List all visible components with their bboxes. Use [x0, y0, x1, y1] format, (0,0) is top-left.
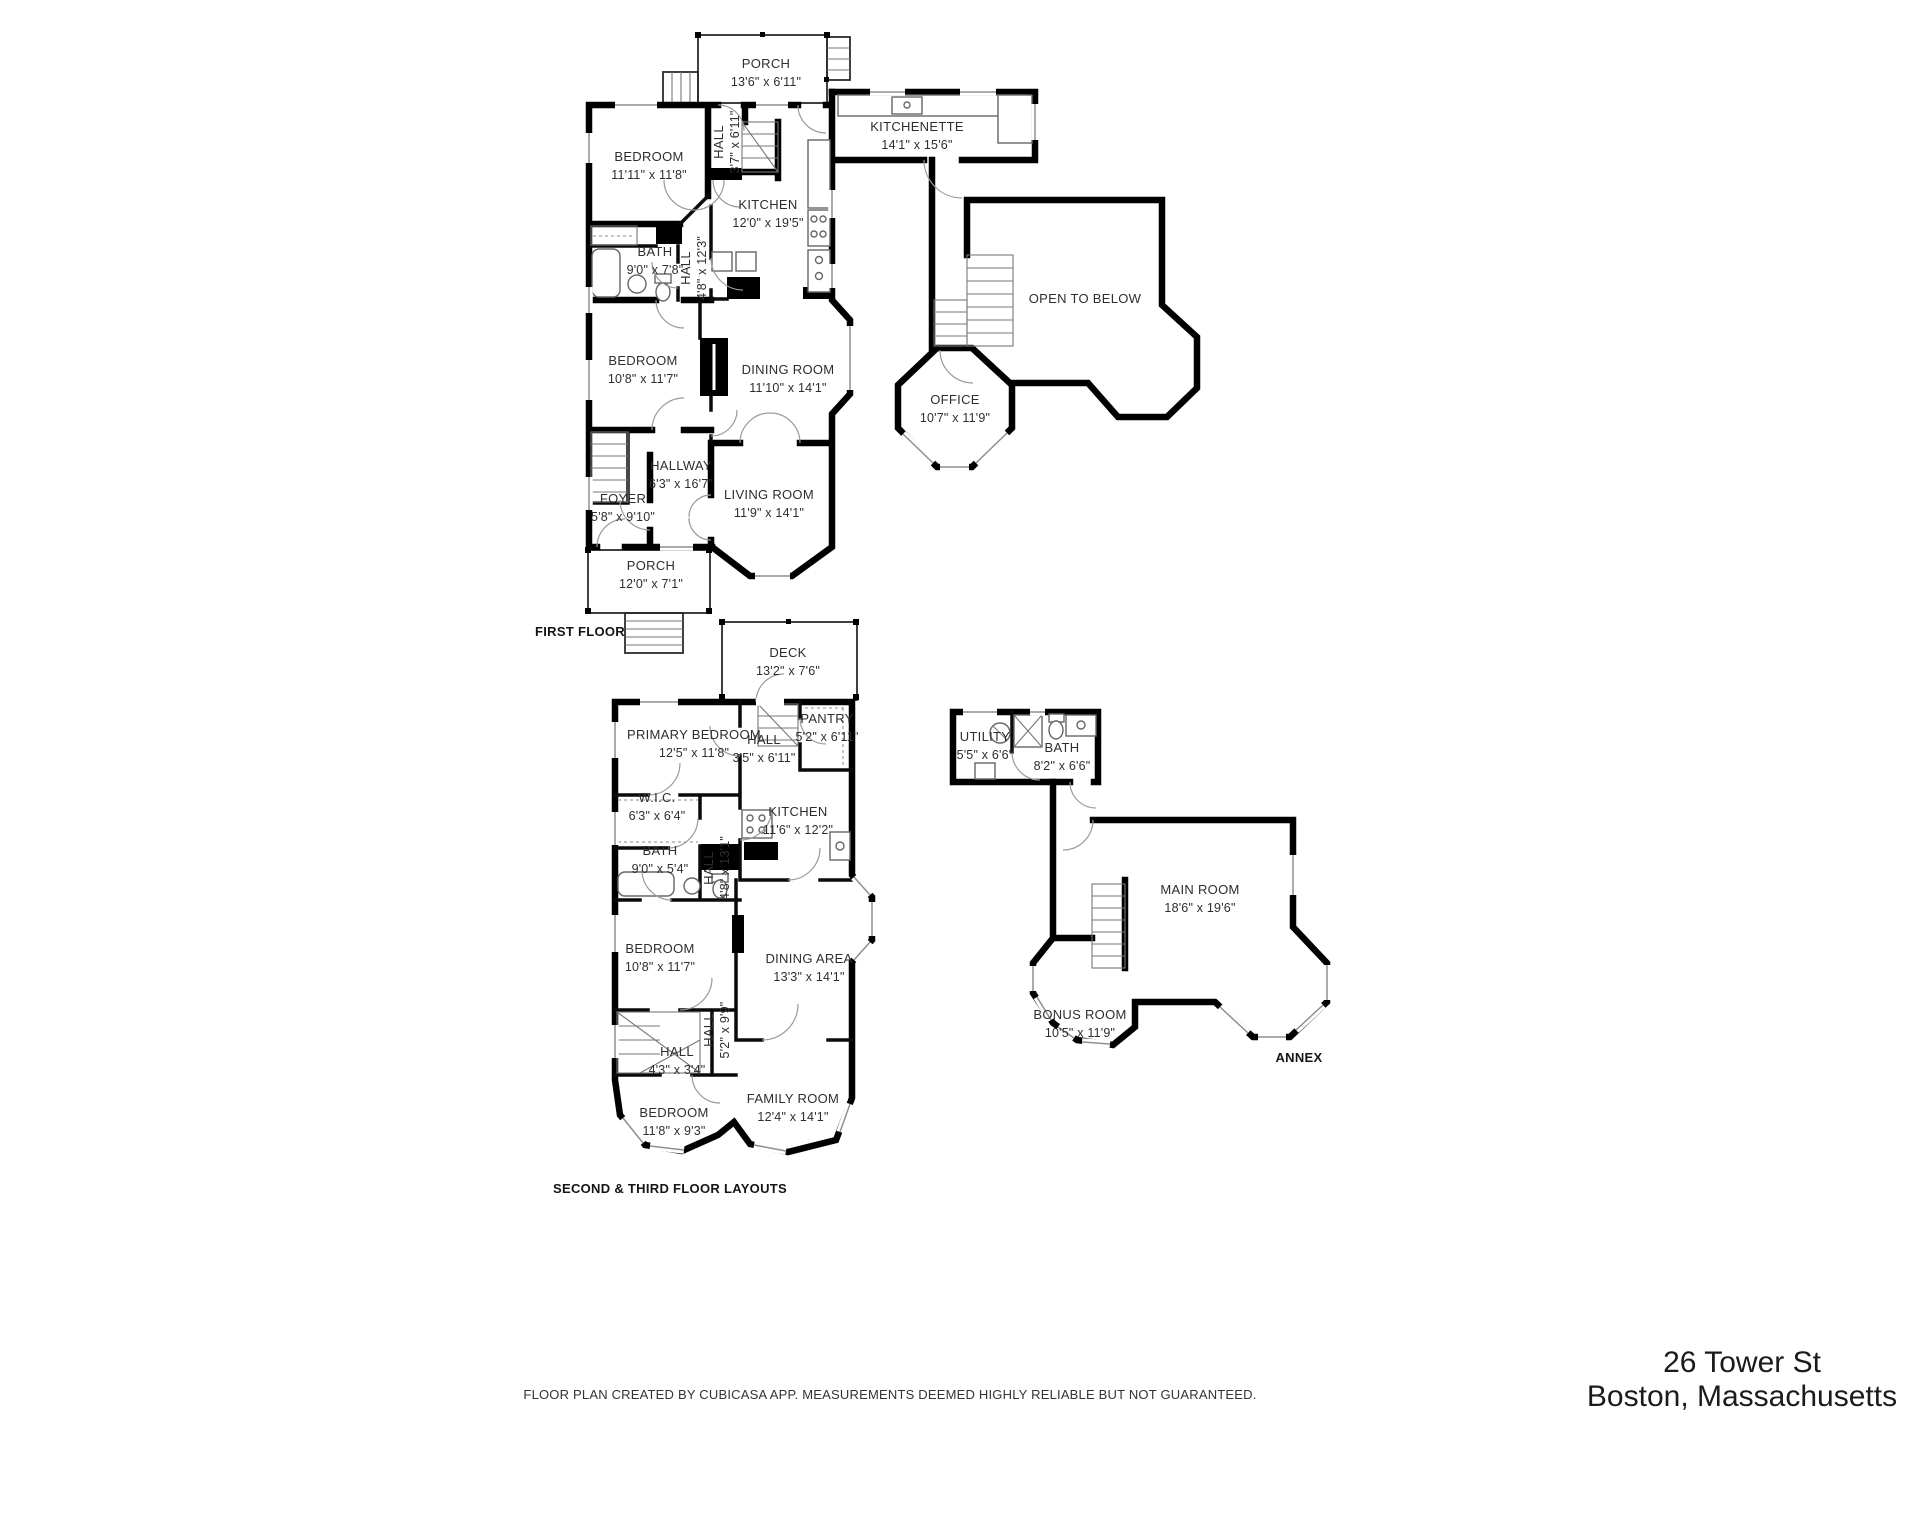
room-label: BEDROOM [608, 353, 677, 368]
room-dims: 11'9" x 14'1" [734, 506, 804, 520]
stairwell-stairs [934, 255, 1013, 346]
room-label: HALL [678, 251, 693, 285]
room-label: PORCH [742, 56, 790, 71]
room-dims: 11'6" x 12'2" [763, 823, 833, 837]
room-label: OFFICE [930, 392, 979, 407]
room-dims: 11'8" x 9'3" [642, 1124, 705, 1138]
room-dims: 11'10" x 14'1" [749, 381, 826, 395]
room-label: FOYER [600, 491, 646, 506]
floor-plan-page: FIRST FLOORPORCH13'6" x 6'11"BEDROOM11'1… [0, 0, 1931, 1536]
open-to-below-walls [932, 160, 1197, 417]
room-label: DINING ROOM [742, 362, 835, 377]
room-dims: 3'7" x 6'11" [728, 110, 742, 173]
room-label: BATH [638, 244, 673, 259]
wall-chunk [656, 224, 682, 244]
room-dims: 13'3" x 14'1" [773, 970, 844, 984]
room-label: BEDROOM [639, 1105, 708, 1120]
room-label: KITCHENETTE [870, 119, 964, 134]
room-label: HALL [701, 851, 716, 885]
room-label: PRIMARY BEDROOM [627, 727, 761, 742]
room-dims: 12'0" x 7'1" [619, 577, 683, 591]
room-dims: 5'2" x 9'9" [718, 1002, 732, 1059]
room-label: KITCHEN [768, 804, 827, 819]
annex-stairs [1092, 884, 1125, 968]
room-dims: 12'0" x 19'5" [732, 216, 803, 230]
disclaimer-text: FLOOR PLAN CREATED BY CUBICASA APP. MEAS… [523, 1387, 1256, 1402]
room-dims: 4'8" x 12'3" [695, 236, 709, 300]
annex-windows [963, 712, 1327, 1044]
room-label: HALL [747, 732, 781, 747]
plan-title: ANNEX [1275, 1050, 1322, 1065]
room-dims: 12'4" x 14'1" [757, 1110, 828, 1124]
plan-title: FIRST FLOOR [535, 624, 625, 639]
room-label: KITCHEN [738, 197, 797, 212]
room-dims: 5'8" x 9'10" [591, 510, 655, 524]
room-label: BEDROOM [614, 149, 683, 164]
room-dims: 4'3" x 3'4" [649, 1063, 706, 1077]
room-dims: 13'6" x 6'11" [731, 75, 801, 89]
room-label: DINING AREA [765, 951, 852, 966]
room-dims: 9'0" x 5'4" [632, 862, 689, 876]
room-label: BEDROOM [625, 941, 694, 956]
room-label: BATH [643, 843, 678, 858]
bedroom-closet [591, 226, 637, 245]
room-label: UTILITY [960, 729, 1011, 744]
room-dims: 10'7" x 11'9" [920, 411, 990, 425]
room-dims: 10'5" x 11'9" [1045, 1026, 1115, 1040]
room-label: OPEN TO BELOW [1029, 291, 1142, 306]
room-dims: 13'2" x 7'6" [756, 664, 820, 678]
room-label: DECK [769, 645, 806, 660]
room-label: BONUS ROOM [1033, 1007, 1126, 1022]
address-line-2: Boston, Massachusetts [1587, 1380, 1897, 1413]
room-label: PORCH [627, 558, 675, 573]
room-dims: 18'6" x 19'6" [1164, 901, 1235, 915]
room-dims: 5'5" x 6'6" [957, 748, 1014, 762]
room-label: HALL [701, 1013, 716, 1047]
room-dims: 8'2" x 6'6" [1034, 759, 1091, 773]
room-label: HALLWAY [650, 458, 712, 473]
room-label: HALL [711, 125, 726, 159]
room-dims: 3'5" x 6'11" [732, 751, 795, 765]
room-dims: 12'5" x 11'8" [659, 746, 729, 760]
room-dims: 5'2" x 6'11" [795, 730, 858, 744]
room-label: BATH [1045, 740, 1080, 755]
room-dims: 10'8" x 11'7" [625, 960, 695, 974]
room-dims: 14'1" x 15'6" [881, 138, 952, 152]
room-dims: 6'3" x 16'7" [649, 477, 713, 491]
room-label: LIVING ROOM [724, 487, 814, 502]
room-dims: 9'0" x 7'8" [627, 263, 684, 277]
wall-chunk [732, 915, 744, 953]
hall-stairs [742, 122, 778, 172]
wall-chunk [744, 842, 778, 860]
plan-title: SECOND & THIRD FLOOR LAYOUTS [553, 1181, 787, 1196]
room-label: MAIN ROOM [1160, 882, 1239, 897]
room-label: W.I.C. [638, 790, 675, 805]
floor-plan-drawing: FIRST FLOORPORCH13'6" x 6'11"BEDROOM11'1… [0, 0, 1931, 1536]
address-line-1: 26 Tower St [1663, 1346, 1822, 1379]
room-label: HALL [660, 1044, 694, 1059]
room-dims: 4'8" x 13'1" [718, 836, 732, 900]
room-label: PANTRY [800, 711, 853, 726]
room-label: FAMILY ROOM [747, 1091, 839, 1106]
room-dims: 10'8" x 11'7" [608, 372, 678, 386]
room-dims: 6'3" x 6'4" [629, 809, 686, 823]
room-dims: 11'11" x 11'8" [611, 168, 687, 182]
